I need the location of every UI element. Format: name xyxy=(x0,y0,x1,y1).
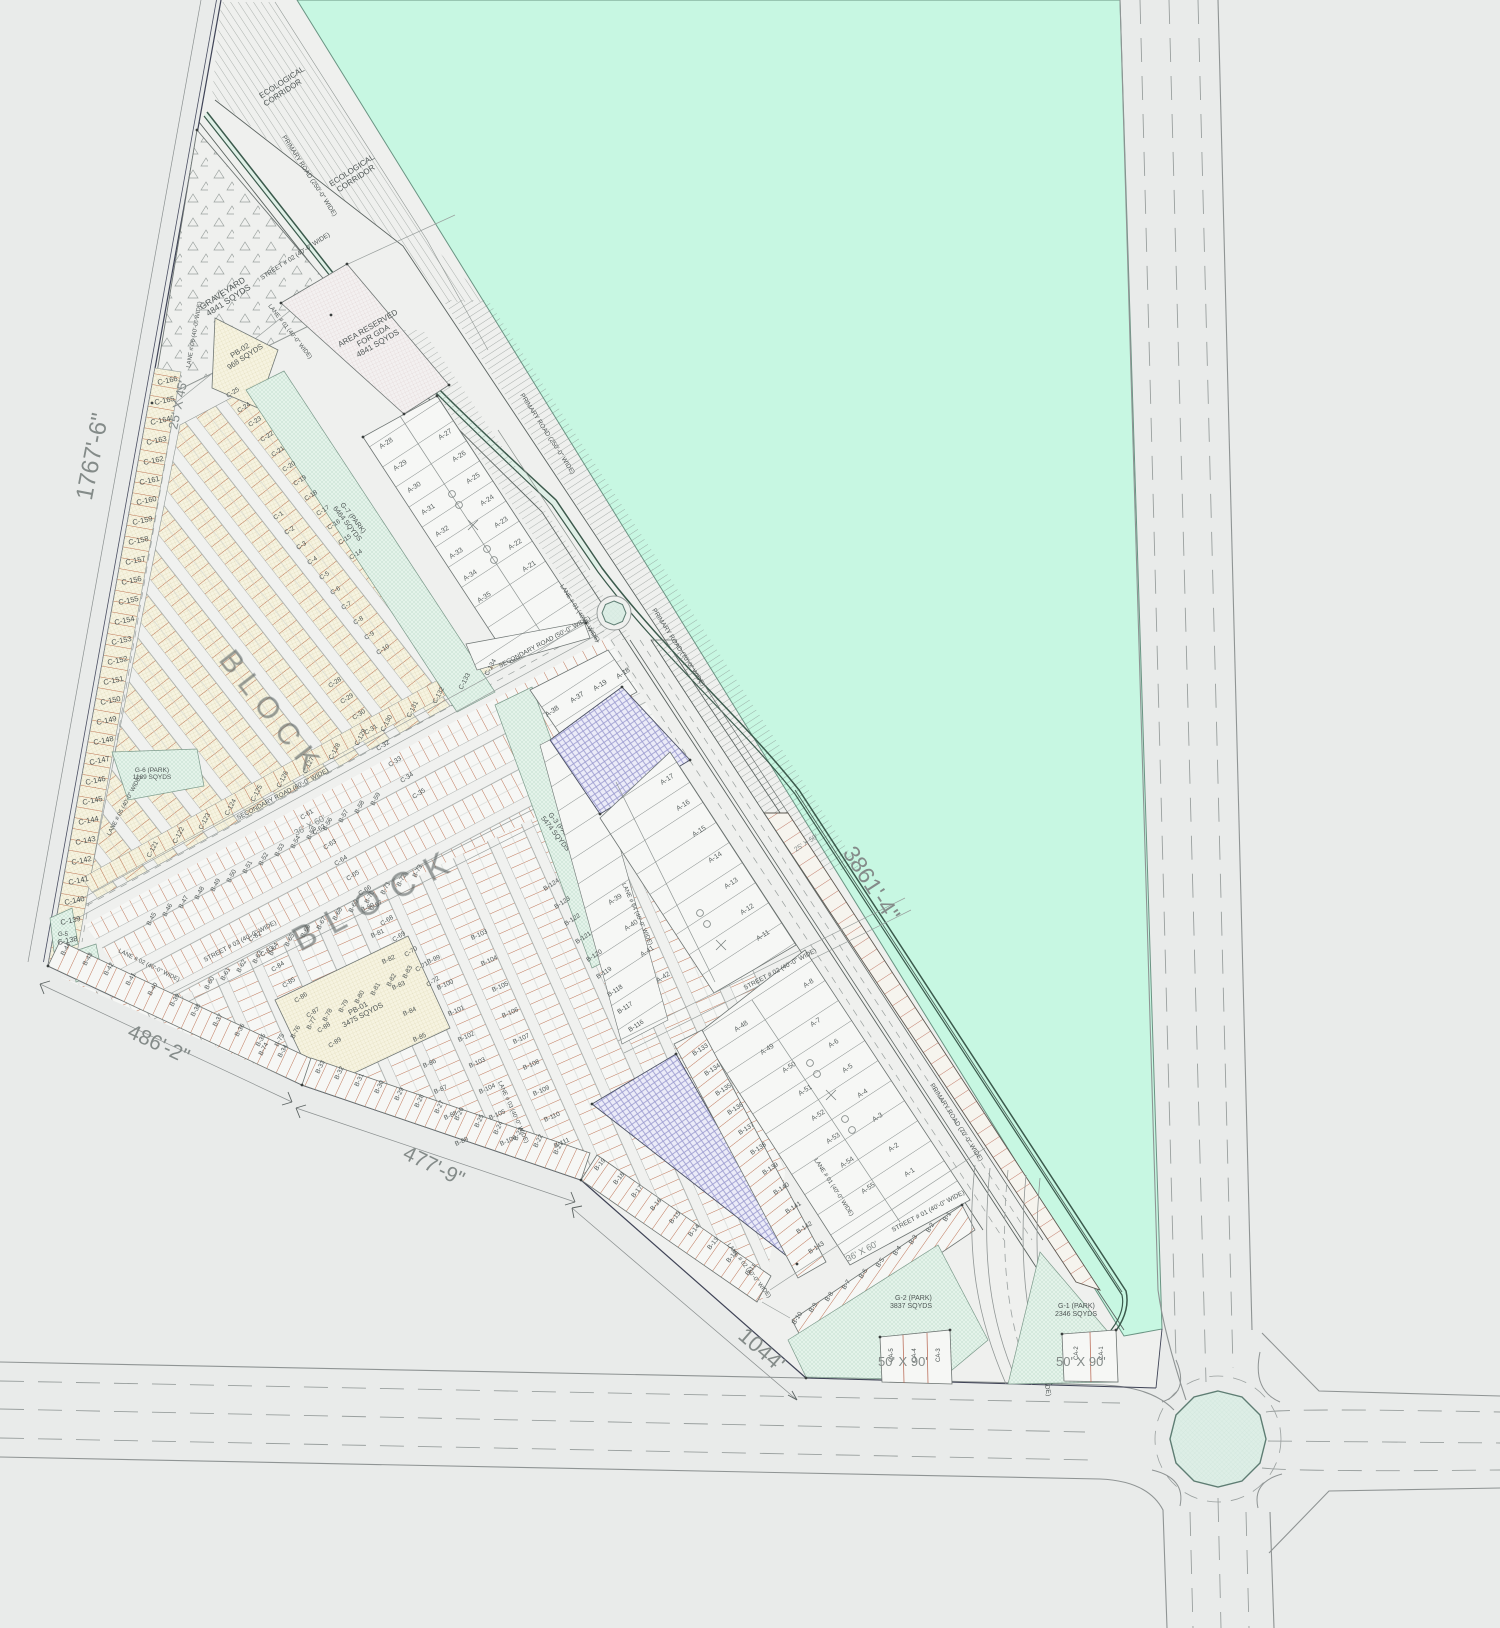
svg-text:G-2 (PARK)3837 SQYDS: G-2 (PARK)3837 SQYDS xyxy=(890,1295,932,1310)
svg-text:50' X 90': 50' X 90' xyxy=(1056,1354,1106,1369)
svg-text:G-1 (PARK)2346 SQYDS: G-1 (PARK)2346 SQYDS xyxy=(1055,1303,1097,1318)
svg-text:50' X 90': 50' X 90' xyxy=(878,1354,928,1369)
svg-text:CA-3: CA-3 xyxy=(936,1348,942,1362)
